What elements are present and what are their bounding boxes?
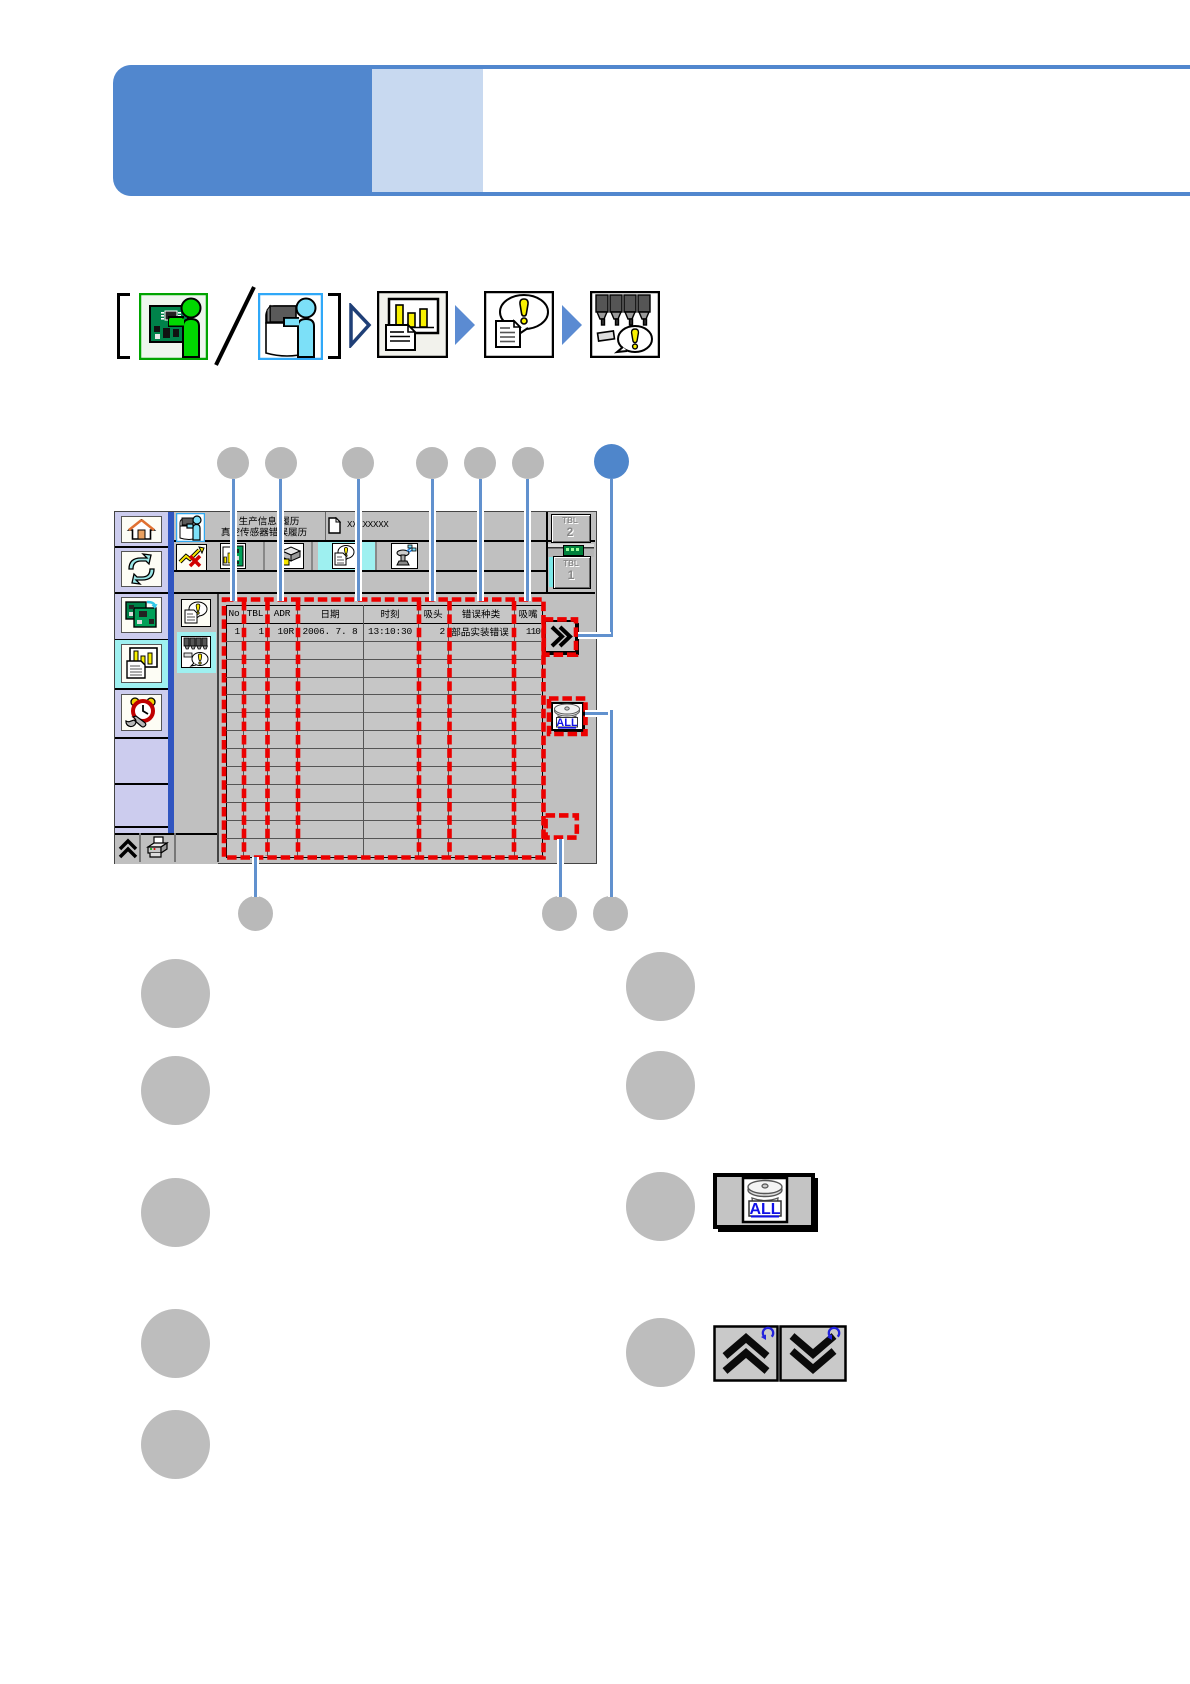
svg-text:ALL: ALL: [749, 1201, 780, 1218]
